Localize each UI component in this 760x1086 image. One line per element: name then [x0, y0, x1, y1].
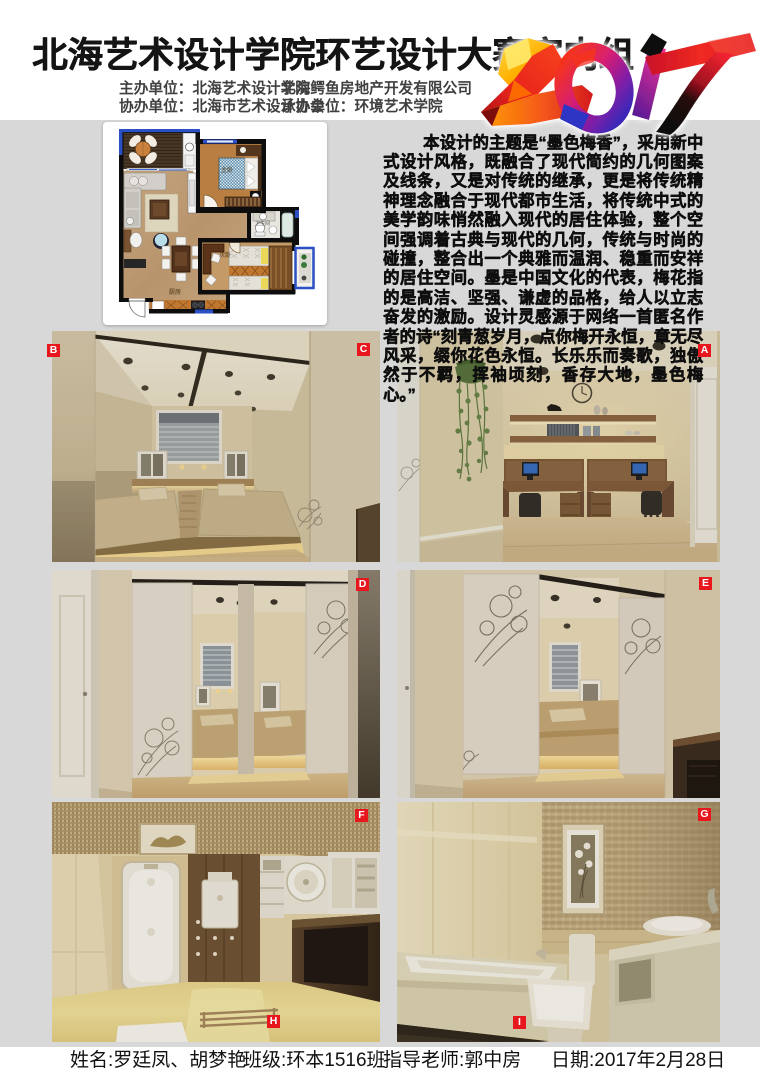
svg-text:次卧: 次卧 — [219, 251, 231, 259]
svg-text:主卧: 主卧 — [221, 166, 233, 174]
svg-text:厨房: 厨房 — [169, 288, 181, 296]
svg-text:卫生间: 卫生间 — [255, 220, 270, 227]
